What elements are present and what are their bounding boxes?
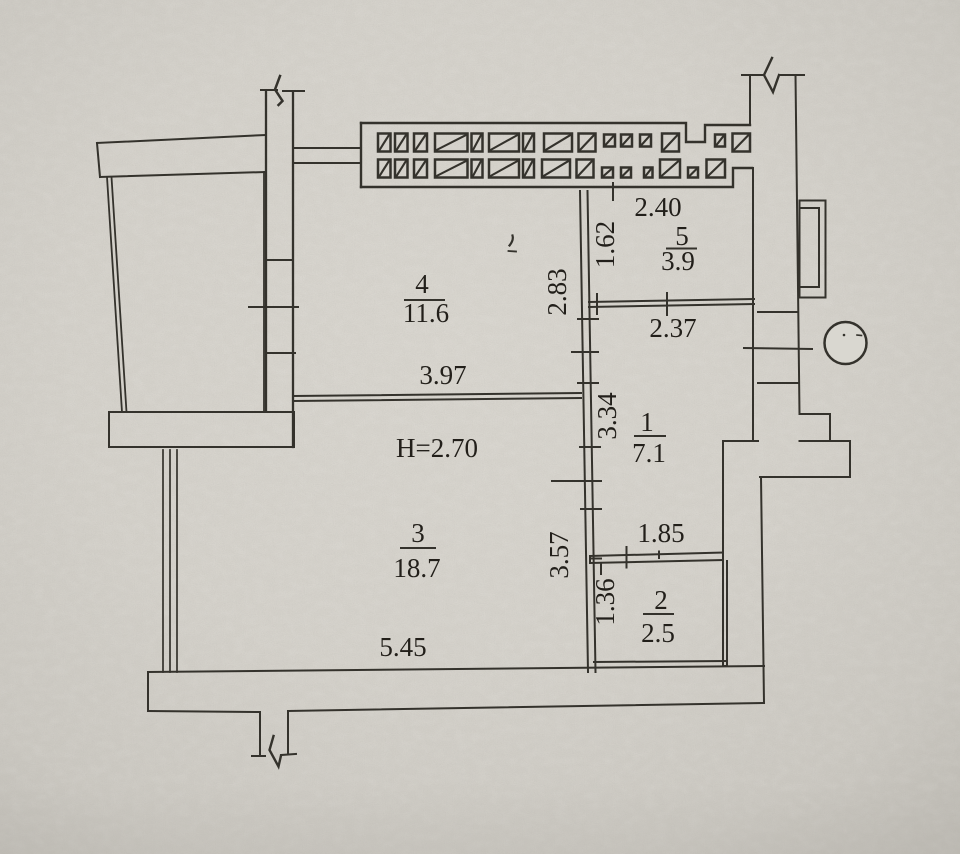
svg-text:2.5: 2.5 [641, 618, 675, 648]
svg-text:H=2.70: H=2.70 [396, 433, 478, 463]
svg-text:11.6: 11.6 [403, 298, 449, 328]
svg-text:3.34: 3.34 [592, 392, 622, 440]
svg-text:1.62: 1.62 [590, 221, 620, 268]
svg-text:3: 3 [411, 518, 425, 548]
svg-text:2.83: 2.83 [542, 268, 572, 315]
svg-text:4: 4 [415, 269, 429, 299]
svg-text:2: 2 [654, 585, 668, 615]
svg-text:1.36: 1.36 [590, 578, 620, 625]
svg-text:1: 1 [640, 407, 654, 437]
svg-text:3.9: 3.9 [661, 246, 695, 276]
svg-text:7.1: 7.1 [632, 438, 666, 468]
svg-text:18.7: 18.7 [393, 553, 440, 583]
svg-text:5.45: 5.45 [379, 632, 426, 662]
svg-text:2.40: 2.40 [634, 192, 681, 222]
svg-text:3.97: 3.97 [419, 360, 466, 390]
svg-text:3.57: 3.57 [544, 531, 574, 578]
svg-text:2.37: 2.37 [649, 313, 696, 343]
svg-text:1.85: 1.85 [637, 518, 684, 548]
